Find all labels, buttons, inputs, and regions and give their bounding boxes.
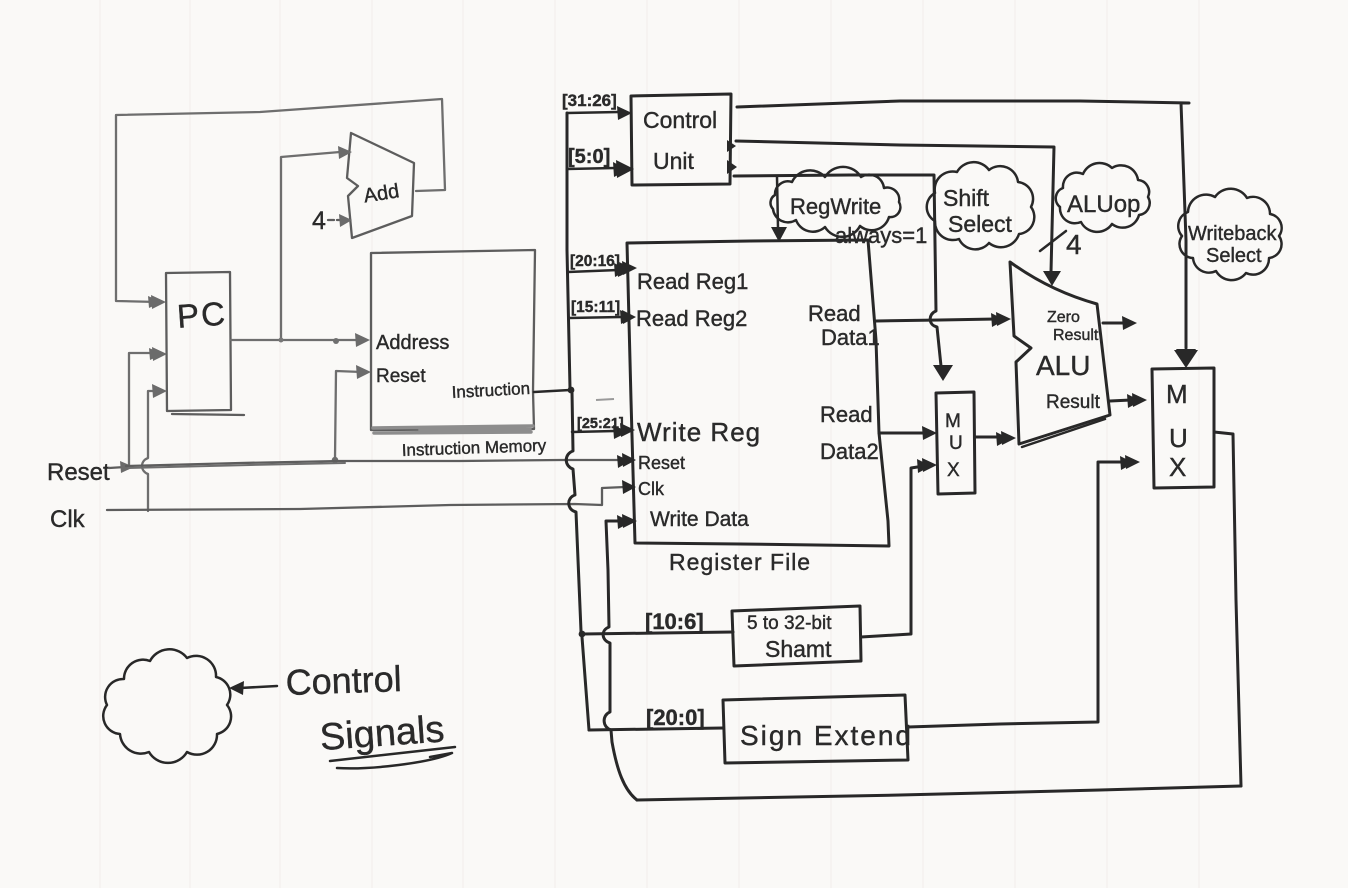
svg-text:Unit: Unit	[653, 148, 695, 174]
svg-text:ALUop: ALUop	[1067, 191, 1140, 218]
svg-text:[10:6]: [10:6]	[645, 609, 704, 634]
svg-text:5 to 32-bit: 5 to 32-bit	[747, 613, 832, 634]
svg-text:Control: Control	[285, 658, 402, 703]
svg-text:U: U	[949, 433, 963, 454]
svg-text:X: X	[947, 460, 960, 481]
svg-text:M: M	[945, 411, 961, 432]
svg-text:Signals: Signals	[318, 708, 445, 759]
svg-text:Shamt: Shamt	[765, 636, 832, 662]
svg-text:Read Reg1: Read Reg1	[637, 269, 748, 294]
svg-text:[5:0]: [5:0]	[568, 146, 610, 168]
svg-text:RegWrite: RegWrite	[790, 194, 881, 219]
svg-text:[31:26]: [31:26]	[562, 91, 617, 110]
svg-text:Clk: Clk	[638, 479, 665, 499]
svg-text:Read Reg2: Read Reg2	[636, 306, 747, 331]
svg-text:Data1: Data1	[821, 325, 880, 350]
svg-text:[20:16]: [20:16]	[570, 253, 620, 270]
svg-text:Writeback: Writeback	[1188, 223, 1278, 245]
svg-text:Shift: Shift	[943, 185, 990, 211]
svg-text:Result: Result	[1053, 327, 1099, 344]
svg-text:[20:0]: [20:0]	[646, 705, 705, 730]
svg-text:always=1: always=1	[835, 223, 927, 248]
svg-text:X: X	[1169, 452, 1186, 482]
svg-text:Select: Select	[948, 211, 1013, 237]
svg-text:Data2: Data2	[820, 439, 879, 464]
svg-text:4: 4	[1066, 229, 1082, 260]
svg-text:Result: Result	[1046, 392, 1101, 413]
svg-text:Write Data: Write Data	[650, 508, 749, 531]
svg-text:Reset: Reset	[47, 459, 110, 486]
svg-text:[15:11]: [15:11]	[571, 299, 620, 316]
svg-text:Zero: Zero	[1047, 309, 1080, 326]
svg-text:Clk: Clk	[50, 506, 86, 533]
svg-text:4: 4	[312, 207, 326, 235]
svg-text:Control: Control	[643, 107, 717, 133]
svg-text:ALU: ALU	[1036, 350, 1090, 381]
svg-text:Reset: Reset	[376, 366, 426, 387]
svg-text:Register File: Register File	[669, 549, 811, 575]
svg-text:M: M	[1166, 379, 1188, 409]
svg-text:Reset: Reset	[638, 453, 685, 473]
svg-text:Select: Select	[1206, 245, 1262, 267]
svg-text:Read: Read	[808, 301, 861, 326]
svg-text:Read: Read	[820, 402, 873, 427]
svg-text:Write Reg: Write Reg	[637, 417, 761, 447]
svg-text:PC: PC	[176, 294, 228, 334]
svg-text:Sign Extend: Sign Extend	[740, 720, 913, 751]
svg-text:U: U	[1169, 423, 1188, 453]
svg-text:Address: Address	[376, 332, 449, 354]
